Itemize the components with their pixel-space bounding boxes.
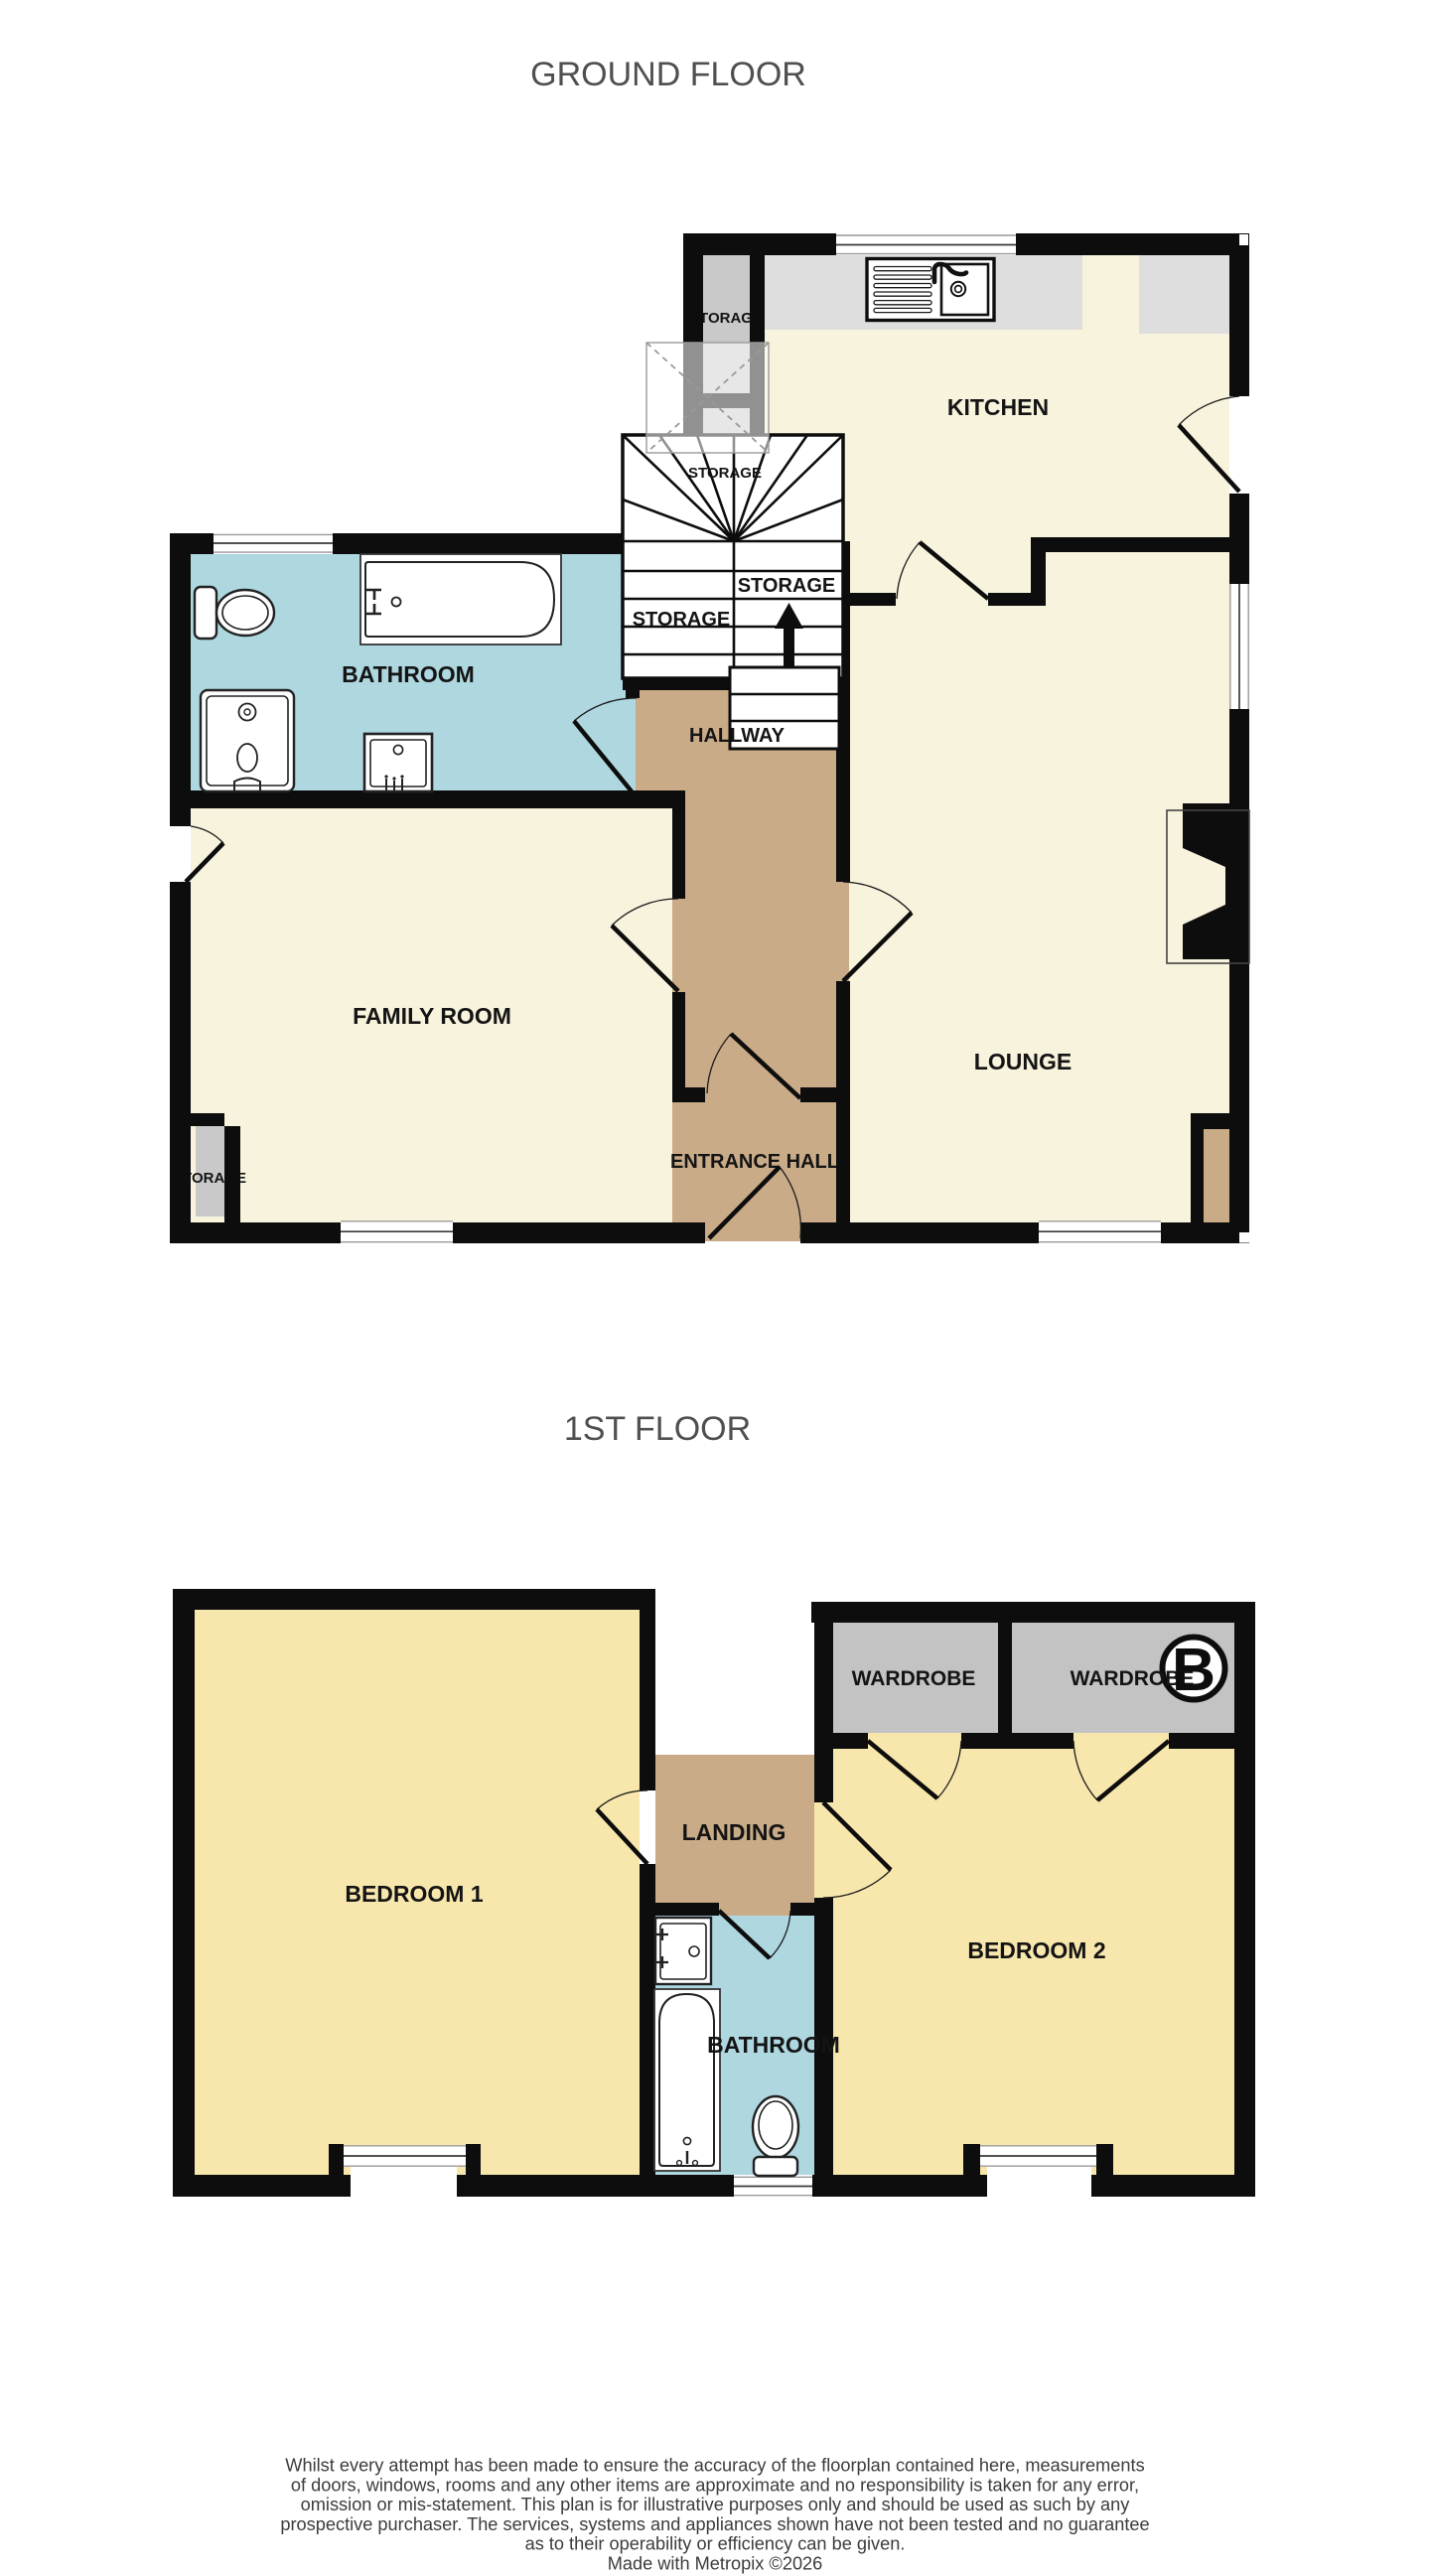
svg-text:STORAGE: STORAGE bbox=[688, 465, 762, 482]
svg-text:1ST FLOOR: 1ST FLOOR bbox=[564, 1410, 751, 1448]
svg-text:B: B bbox=[1172, 1636, 1215, 1703]
svg-text:FAMILY ROOM: FAMILY ROOM bbox=[353, 1003, 511, 1029]
svg-text:BEDROOM 2: BEDROOM 2 bbox=[967, 1937, 1105, 1963]
svg-text:KITCHEN: KITCHEN bbox=[947, 394, 1049, 420]
svg-text:LANDING: LANDING bbox=[682, 1819, 786, 1845]
svg-text:BEDROOM 1: BEDROOM 1 bbox=[345, 1881, 484, 1907]
svg-text:GROUND FLOOR: GROUND FLOOR bbox=[530, 56, 806, 93]
svg-text:HALLWAY: HALLWAY bbox=[689, 725, 786, 747]
svg-text:WARDROBE: WARDROBE bbox=[852, 1667, 976, 1690]
svg-text:as to their operability or eff: as to their operability or efficiency ca… bbox=[525, 2534, 906, 2554]
svg-text:BATHROOM: BATHROOM bbox=[342, 661, 475, 687]
svg-text:ENTRANCE HALL: ENTRANCE HALL bbox=[670, 1151, 839, 1173]
svg-text:omission or mis-statement. Thi: omission or mis-statement. This plan is … bbox=[301, 2495, 1131, 2514]
svg-text:Whilst every attempt has been: Whilst every attempt has been made to en… bbox=[285, 2456, 1144, 2476]
svg-text:of doors, windows, rooms and a: of doors, windows, rooms and any other i… bbox=[291, 2475, 1139, 2495]
svg-text:prospective purchaser. The ser: prospective purchaser. The services, sys… bbox=[280, 2514, 1149, 2534]
svg-text:LOUNGE: LOUNGE bbox=[974, 1049, 1072, 1074]
svg-text:STORAGE: STORAGE bbox=[738, 575, 836, 597]
svg-text:STORAGE: STORAGE bbox=[633, 609, 731, 631]
svg-text:BATHROOM: BATHROOM bbox=[707, 2032, 840, 2058]
svg-text:Made with Metropix ©2026: Made with Metropix ©2026 bbox=[608, 2554, 823, 2574]
